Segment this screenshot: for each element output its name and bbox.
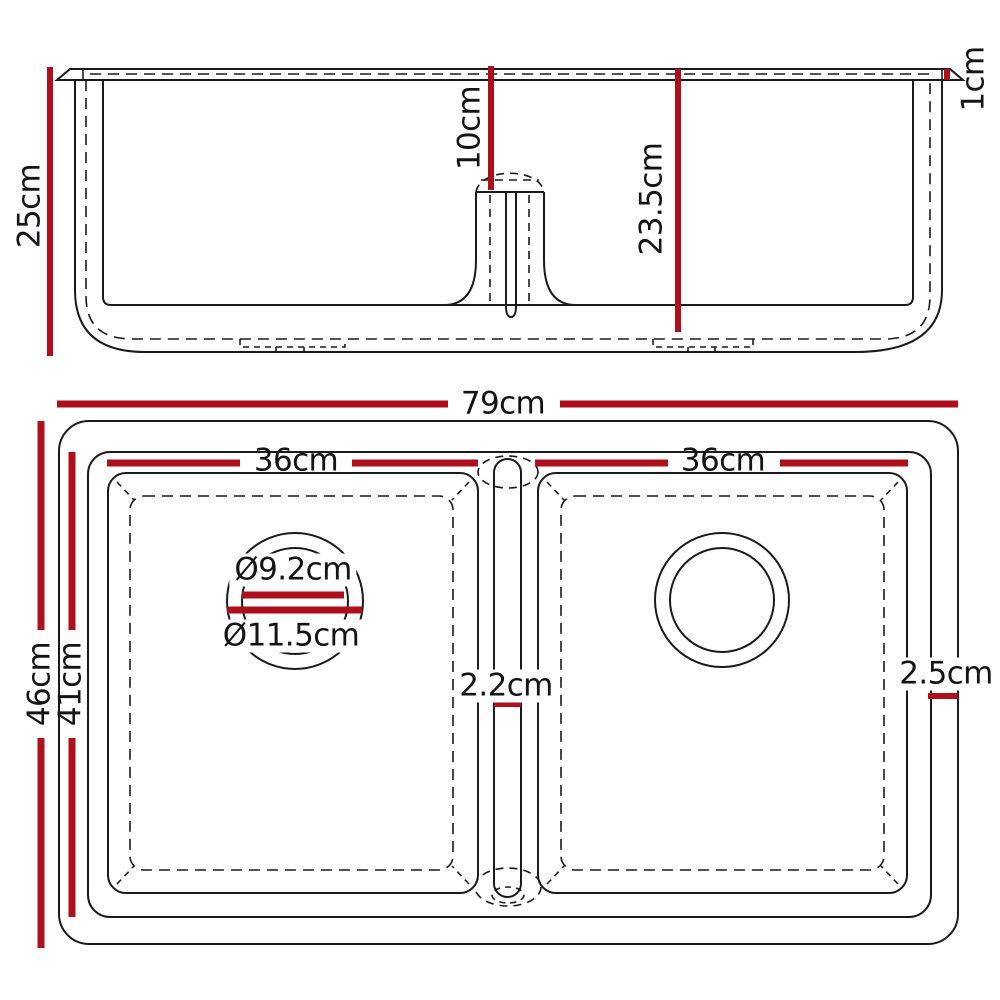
rim-thickness-label: 1cm [959, 46, 990, 111]
hidden-wall-line [86, 80, 930, 339]
divider-hidden-lines [490, 195, 529, 301]
drain-outer-diameter-label: Ø11.5cm [218, 620, 364, 653]
right-bowl-width-label: 36cm [681, 446, 765, 477]
right-drain-inner-circle [670, 548, 774, 652]
divider-dome-hidden [476, 173, 544, 192]
divider-inner-channel [506, 192, 516, 317]
overall-height-label: 25cm [15, 164, 46, 248]
edge-width-label: 2.5cm [894, 658, 998, 691]
outer-shell [75, 80, 942, 352]
bowl-depth-label: 23.5cm [637, 143, 668, 256]
sink-dimension-diagram: 25cm 10cm 23.5cm 1cm 79cm 36cm 36cm 46cm… [0, 0, 1000, 1000]
drain-inner-diameter-label: Ø9.2cm [229, 554, 356, 587]
divider-top-hidden-curve [478, 456, 538, 488]
right-drain-outer-circle [655, 533, 789, 667]
left-bowl-width-label: 36cm [254, 446, 338, 477]
right-bowl-opening [538, 473, 907, 893]
overall-width-label: 79cm [461, 389, 545, 420]
right-bowl-bottom-hidden [561, 496, 884, 870]
overall-depth-label: 46cm [25, 642, 56, 726]
side-view-drawing [50, 66, 963, 356]
left-bowl-opening [108, 473, 478, 893]
right-drain-boss [653, 339, 753, 347]
divider-width-label: 2.2cm [454, 670, 558, 703]
inner-depth-label: 41cm [56, 642, 87, 726]
divider-right-wall [544, 192, 576, 305]
divider-bottom-hidden-curve-small [492, 887, 524, 903]
divider-offset-label: 10cm [455, 86, 486, 170]
diagram-linework [0, 0, 1000, 1000]
left-drain-boss [240, 339, 345, 347]
divider-left-wall [444, 192, 476, 305]
